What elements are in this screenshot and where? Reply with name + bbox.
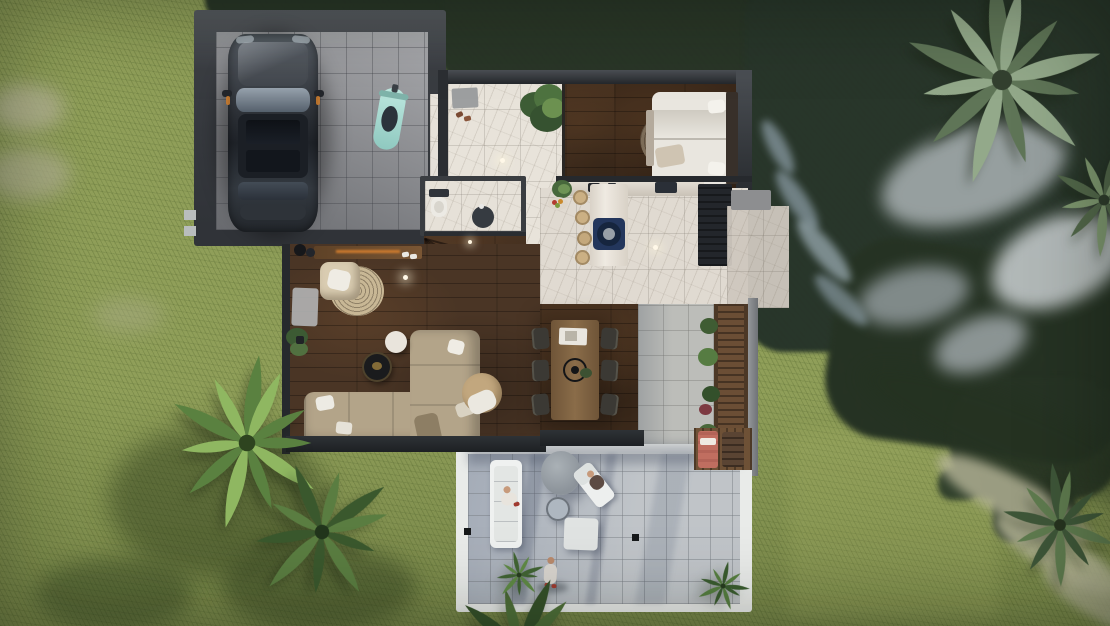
dining-chair-l2 [531, 360, 549, 382]
terrace-post-2 [632, 534, 639, 541]
bed-duvet-fold [652, 110, 732, 138]
car-sunroof-front [246, 120, 300, 144]
car-trunk [240, 204, 306, 220]
downlight-hall [500, 158, 505, 163]
double-bed [646, 92, 738, 184]
downlight-stairs [468, 240, 472, 244]
main-top-wall [438, 70, 752, 84]
wc-faucet [479, 204, 484, 209]
hall-plant [520, 84, 568, 136]
garage-pier-1 [184, 210, 196, 220]
coffee-table-decor [372, 362, 382, 370]
garage-pier-2 [184, 226, 196, 236]
counter-plant-2 [558, 184, 570, 194]
edge-plant-pot [296, 336, 304, 344]
terrace-post-1 [464, 528, 471, 535]
downlight-kitchen [653, 245, 658, 250]
side-terrace-marble [727, 206, 789, 308]
sun-lounger-salmon [698, 431, 718, 468]
decor-vase-1 [294, 244, 306, 256]
planter-green-2 [698, 348, 718, 366]
planter-green-3 [702, 386, 720, 402]
car-marker-right [316, 96, 320, 105]
car-marker-left [226, 96, 230, 105]
entry-side-mat [291, 288, 318, 327]
fruit-green [555, 203, 560, 208]
bed-bench [646, 110, 654, 166]
sand-patch-3 [92, 298, 164, 332]
bar-stool-4 [575, 250, 590, 265]
person1-shoes [513, 502, 520, 507]
toilet [429, 189, 449, 219]
console-glow-strip [336, 250, 400, 253]
armchair-throw [326, 268, 352, 292]
dining-chair-l1 [531, 327, 550, 349]
table-picture [565, 331, 577, 341]
table-wheel-hub [571, 366, 579, 374]
planter-green-1 [700, 318, 718, 334]
bar-stool-2 [575, 210, 590, 225]
coffee-table-white [385, 331, 407, 353]
car-hood-shine [238, 42, 308, 86]
aerial-villa-render [0, 0, 1110, 626]
white-slipper-2 [410, 254, 417, 260]
sun-lounger-wood [722, 432, 744, 467]
island-sink-disk [603, 228, 615, 240]
dining-chair-l3 [531, 393, 550, 416]
plant-leaf-4 [542, 98, 564, 118]
car-sunroof-rear [246, 150, 300, 172]
terrace-ottoman [563, 517, 598, 550]
bed-seam [652, 138, 732, 140]
cooktop [655, 182, 677, 193]
suv-car [224, 32, 322, 234]
bed-headboard [726, 92, 738, 184]
concrete-pad [731, 190, 771, 210]
toilet-seat [434, 201, 444, 213]
dining-bottom-wall [540, 430, 644, 446]
bar-stool-3 [577, 231, 592, 246]
table-plant [580, 368, 592, 378]
downlight-living [403, 275, 408, 280]
armchair [320, 262, 360, 306]
lounger-towel [700, 438, 716, 445]
decor-vase-2 [306, 248, 315, 257]
bed-pillow-1 [707, 99, 725, 114]
dining-chair-r3 [600, 393, 619, 416]
bar-stool-1 [573, 190, 588, 205]
palm-shadow-3 [36, 558, 192, 626]
dining-chair-r1 [600, 327, 619, 349]
toilet-cistern [429, 189, 449, 197]
bed-pillow-2 [707, 161, 725, 176]
dining-chair-r2 [600, 359, 618, 381]
car-rear-glass [238, 182, 308, 200]
hall-doormat [451, 87, 478, 108]
car-windshield [236, 88, 310, 112]
bedroom-right-wall [736, 70, 752, 202]
planter-flower-1 [699, 404, 712, 415]
palm-terrace-small [490, 546, 549, 605]
wc-basin [472, 206, 494, 228]
